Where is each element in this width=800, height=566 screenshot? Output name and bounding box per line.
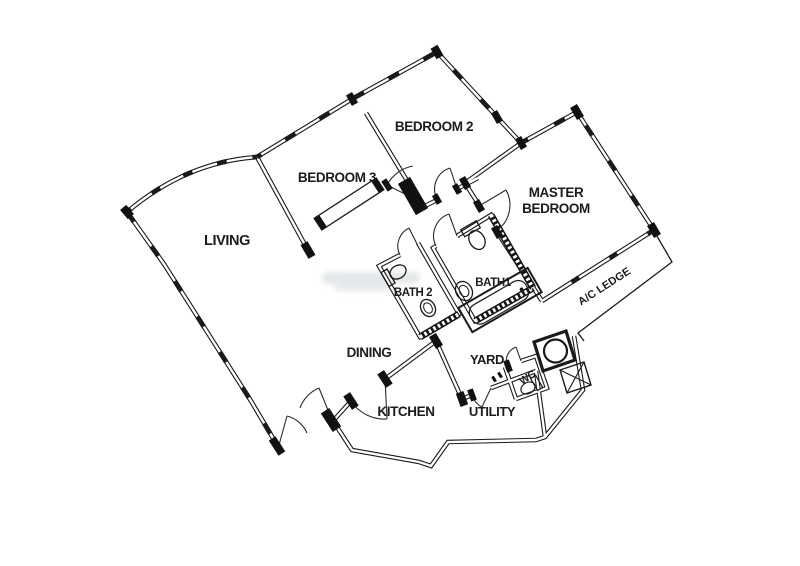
- washing-machine: [534, 331, 575, 371]
- bath2-door-arc: [398, 228, 409, 255]
- meter-tick: [497, 372, 503, 379]
- meter-tick: [491, 376, 497, 383]
- room-label-bedroom2: BEDROOM 2: [395, 119, 473, 134]
- bath1-door-arc: [434, 214, 449, 246]
- entrance-door-arc-left: [287, 416, 307, 433]
- entrance-door-arc-right: [300, 388, 319, 408]
- room-label-yard: YARD: [470, 352, 504, 367]
- room-label-dining: DINING: [347, 345, 392, 360]
- wall-jamb: [269, 436, 286, 455]
- wall-jamb: [321, 408, 341, 432]
- room-label-bedroom3: BEDROOM 3: [298, 170, 377, 185]
- room-label-utility: UTILITY: [469, 404, 516, 419]
- wall-core: [385, 341, 436, 379]
- room-label-master-line2: BEDROOM: [522, 201, 590, 216]
- room-label-bath1: BATH1: [475, 277, 511, 289]
- floor-trap-x-box: [560, 362, 591, 393]
- room-label-bath2: BATH 2: [394, 287, 432, 299]
- wall-core: [465, 143, 521, 183]
- room-label-master-line1: MASTER: [529, 185, 584, 200]
- wall-core: [127, 157, 257, 212]
- floor-plan: LIVING BEDROOM 3 BEDROOM 2 MASTER BEDROO…: [0, 0, 800, 566]
- bedroom3-low-wall: [314, 178, 384, 230]
- room-label-kitchen: KITCHEN: [377, 404, 434, 419]
- floor-plan-canvas: LIVING BEDROOM 3 BEDROOM 2 MASTER BEDROO…: [0, 0, 800, 566]
- fixtures: [381, 221, 591, 398]
- basin-bath2: [417, 297, 438, 320]
- wall-core: [436, 341, 462, 399]
- wall-core: [257, 52, 521, 157]
- room-label-living: LIVING: [204, 233, 250, 249]
